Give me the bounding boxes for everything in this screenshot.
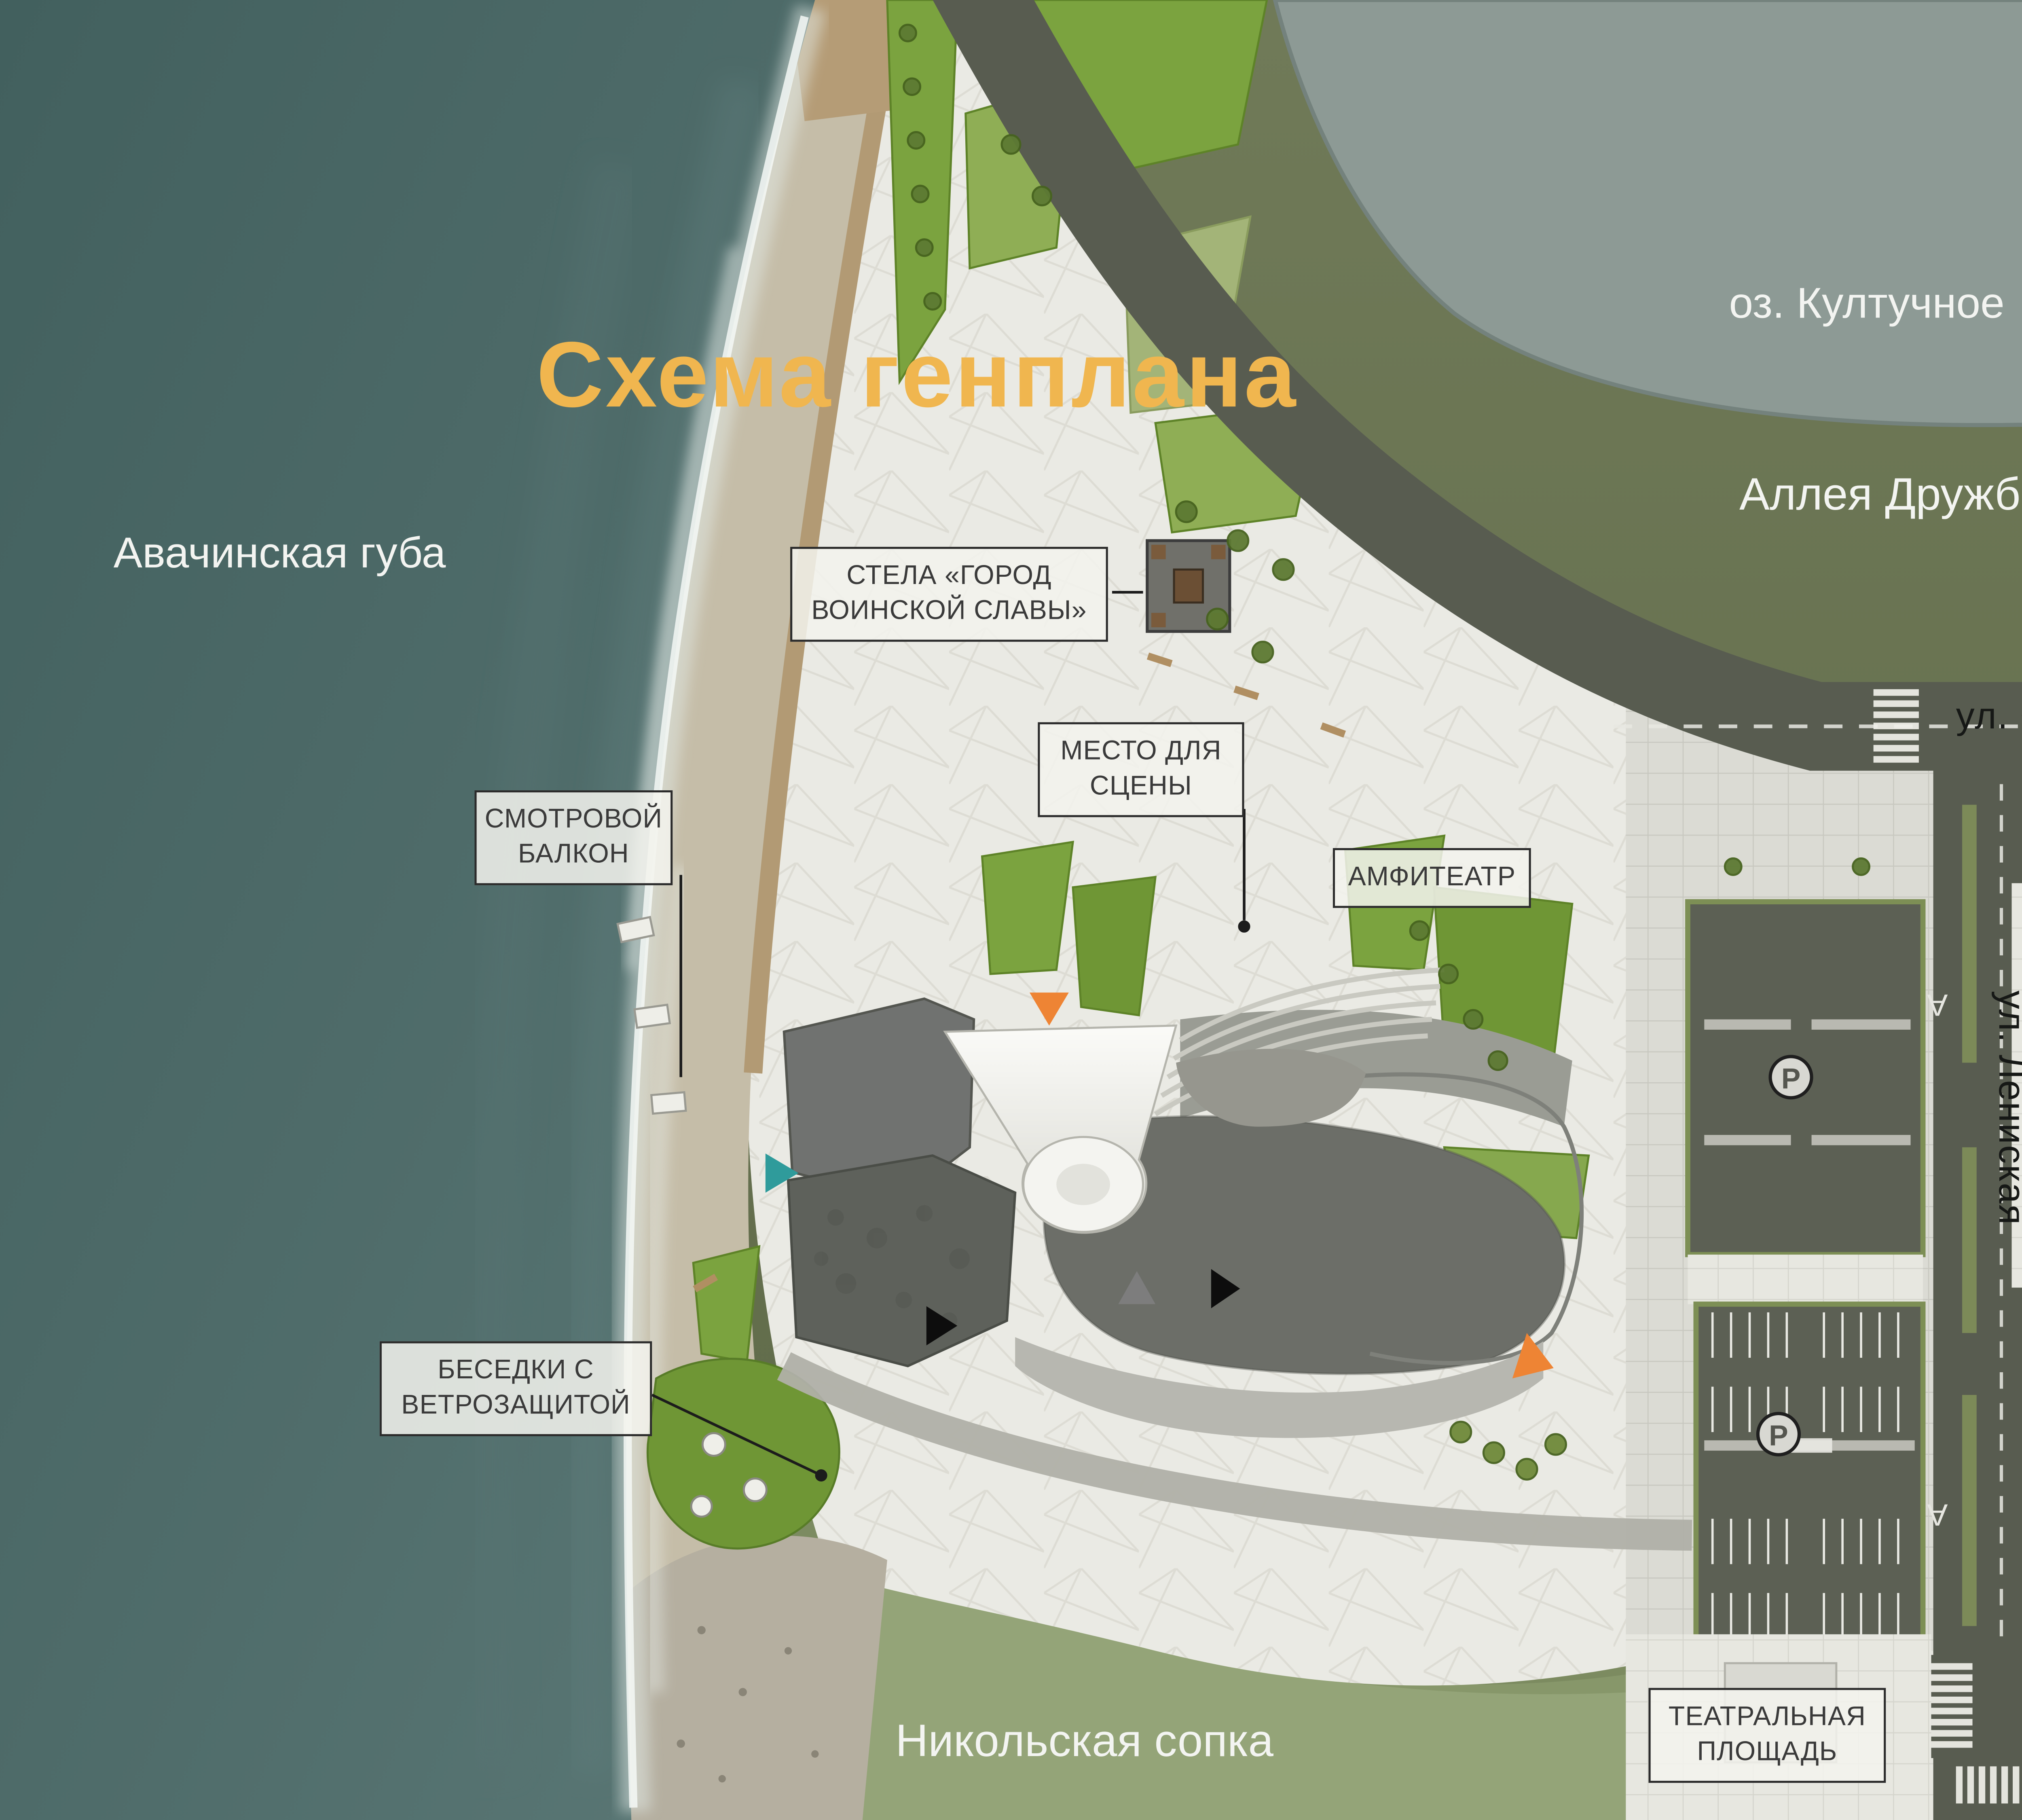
page-title: Схема генплана: [537, 322, 1298, 429]
callout-stela: СТЕЛА «ГОРОД ВОИНСКОЙ СЛАВЫ»: [790, 547, 1108, 641]
callout-gazebos: БЕСЕДКИ С ВЕТРОЗАЩИТОЙ: [380, 1341, 652, 1436]
parking-lot-southwest: [1696, 1304, 1923, 1646]
callout-amphitheater: АМФИТЕАТР: [1333, 848, 1531, 908]
callout-stage: МЕСТО ДЛЯ СЦЕНЫ: [1038, 722, 1244, 817]
parking-badge-letter: P: [1769, 1420, 1788, 1452]
callout-theater-square: ТЕАТРАЛЬНАЯ ПЛОЩАДЬ: [1649, 1688, 1886, 1782]
parking-badge-letter: P: [1781, 1062, 1801, 1095]
area-label-lake: оз. Култучное: [1729, 281, 2005, 330]
area-label-alley: Аллея Дружбы: [1739, 468, 2022, 522]
area-label-bay: Авачинская губа: [114, 530, 446, 580]
road-letter-a-2: A: [1927, 1497, 1948, 1532]
callout-balcony: СМОТРОВОЙ БАЛКОН: [474, 790, 673, 885]
masterplan-canvas: A A: [0, 0, 2022, 1820]
street-label-ozernovskaya: ул. Озерновская Коса: [1956, 695, 2022, 739]
road-letter-a-1: A: [1927, 988, 1948, 1022]
street-label-leninskaya: ул. Лениская: [1989, 964, 2022, 1253]
area-label-hill: Никольская сопка: [895, 1715, 1273, 1769]
masterplan-map: A A: [0, 0, 2022, 1820]
